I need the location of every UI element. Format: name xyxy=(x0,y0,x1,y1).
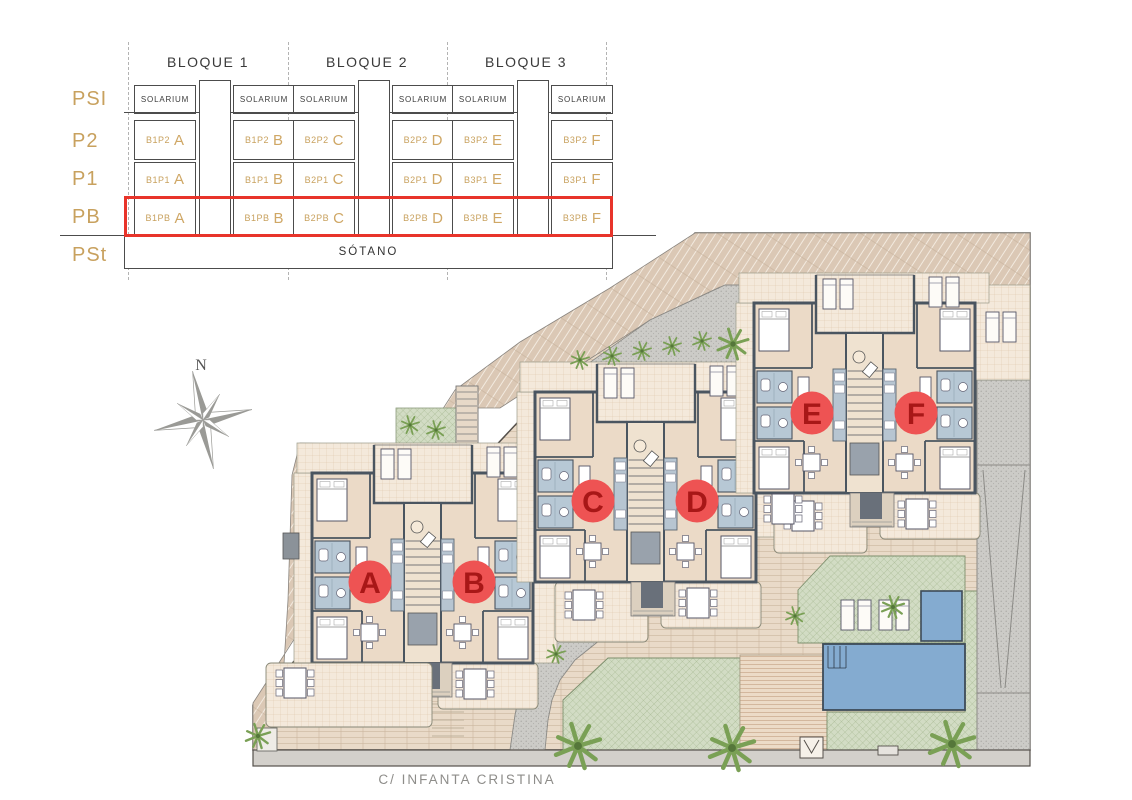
solarium-cell: SOLARIUM xyxy=(392,85,454,114)
floorplan-page: { "legend": { "block_headers": ["BLOQUE … xyxy=(0,0,1132,800)
solarium-cell: SOLARIUM xyxy=(551,85,613,114)
unit-cell-b1p1a: B1P1A xyxy=(134,162,196,197)
floor-label-p1: P1 xyxy=(72,168,118,191)
floor-label-p2: P2 xyxy=(72,130,118,153)
utility-box xyxy=(283,533,299,559)
gate-symbol xyxy=(800,737,823,758)
block-header: BLOQUE 1 xyxy=(128,54,288,70)
main-pool xyxy=(823,644,965,710)
site-plan: A B C D E F N C/ INFANTA CRISTINA xyxy=(140,230,1040,800)
unit-cell-b2p1c: B2P1C xyxy=(293,162,355,197)
garden-pocket xyxy=(396,408,456,448)
street-label: C/ INFANTA CRISTINA xyxy=(378,772,555,787)
floor-label-psi: PSI xyxy=(72,88,118,111)
unit-cell-b1p1b: B1P1B xyxy=(233,162,295,197)
dining-table xyxy=(764,494,802,524)
unit-letter-c: C xyxy=(582,486,604,519)
solarium-cell: SOLARIUM xyxy=(233,85,295,114)
street-drain xyxy=(878,746,898,755)
unit-cell-b3p1e: B3P1E xyxy=(452,162,514,197)
block-header: BLOQUE 3 xyxy=(446,54,606,70)
unit-letter-b: B xyxy=(463,567,485,600)
unit-cell-b3p2e: B3P2E xyxy=(452,120,514,160)
solarium-label: SOLARIUM xyxy=(459,95,507,104)
solarium-label: SOLARIUM xyxy=(399,95,447,104)
kids-pool xyxy=(921,591,962,641)
solarium-label: SOLARIUM xyxy=(141,95,189,104)
compass-rose: N xyxy=(144,357,263,479)
north-label: N xyxy=(195,357,207,374)
solarium-label: SOLARIUM xyxy=(300,95,348,104)
exterior-stairs xyxy=(456,386,478,448)
unit-cell-b3p1f: B3P1F xyxy=(551,162,613,197)
driveway xyxy=(977,380,1030,750)
pool-deck xyxy=(740,655,827,750)
floor-label-pst: PSt xyxy=(72,244,118,267)
unit-cell-b1p2b: B1P2B xyxy=(233,120,295,160)
unit-cell-b2p2c: B2P2C xyxy=(293,120,355,160)
solarium-label: SOLARIUM xyxy=(558,95,606,104)
unit-letter-a: A xyxy=(359,567,381,600)
unit-letter-f: F xyxy=(907,398,925,431)
unit-cell-b3p2f: B3P2F xyxy=(551,120,613,160)
solarium-cell: SOLARIUM xyxy=(452,85,514,114)
solarium-cell: SOLARIUM xyxy=(134,85,196,114)
street xyxy=(253,750,1030,766)
unit-cell-b2p1d: B2P1D xyxy=(392,162,454,197)
solarium-cell: SOLARIUM xyxy=(293,85,355,114)
unit-letter-d: D xyxy=(686,486,708,519)
unit-cell-b1p2a: B1P2A xyxy=(134,120,196,160)
unit-cell-b2p2d: B2P2D xyxy=(392,120,454,160)
block-2-building xyxy=(517,362,770,642)
floor-label-pb: PB xyxy=(72,206,118,229)
solarium-label: SOLARIUM xyxy=(240,95,288,104)
dining-table xyxy=(276,668,314,698)
unit-letter-e: E xyxy=(802,398,822,431)
block-header: BLOQUE 2 xyxy=(287,54,447,70)
